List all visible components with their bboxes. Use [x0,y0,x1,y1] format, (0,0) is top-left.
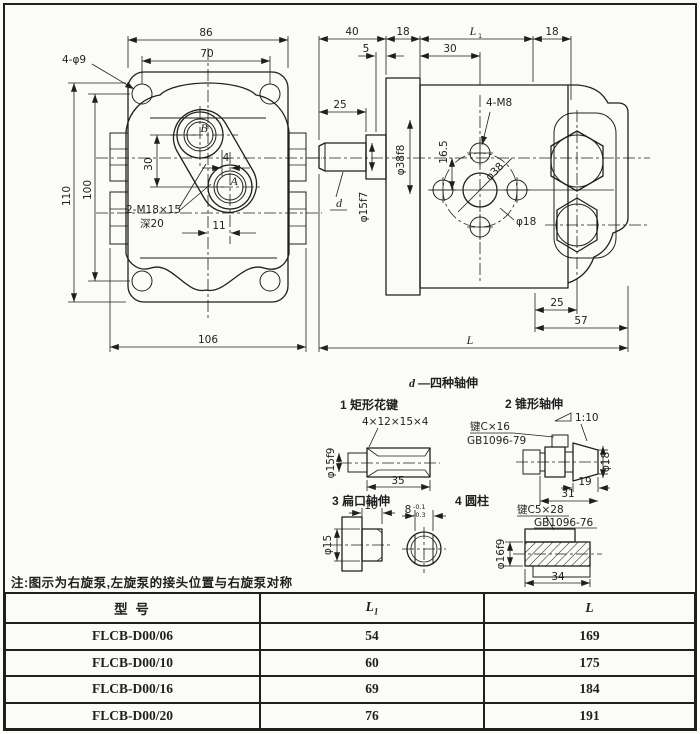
callout-plug-dia: φ18 [500,208,536,228]
svg-text:φ18: φ18 [516,216,536,228]
svg-text:深20: 深20 [140,218,164,230]
callout-port-thread: 2-M18×15 深20 [126,164,211,230]
dim-port-vertical: 30 [143,135,224,187]
svg-text:-0.3: -0.3 [413,511,426,519]
svg-text:11: 11 [212,220,225,232]
svg-text:-0.1: -0.1 [413,503,426,511]
dim-shaft-dia: φ15f7 [358,143,372,222]
drive-shaft [319,143,366,171]
svg-text:4×12×15×4: 4×12×15×4 [362,416,429,428]
svg-text:4 圆柱: 4 圆柱 [455,493,489,508]
l1-cell: 69 [260,676,484,703]
dim-port-circle: φ38 [483,160,506,183]
svg-text:4: 4 [223,152,230,164]
shaft-collar [366,135,386,179]
svg-text:110: 110 [61,186,73,206]
dim-hole-span: 70 [142,48,270,84]
svg-text:30: 30 [143,157,155,170]
table-row: FLCB-D00/20 76 191 [5,703,695,730]
svg-text:18: 18 [396,26,409,38]
l-cell: 175 [484,650,695,677]
svg-text:35: 35 [391,475,404,487]
table-row: FLCB-D00/06 54 169 [5,623,695,650]
shaft-flat: 3 扁口轴伸 10 φ15 8 -0.1 -0.3 [322,493,446,573]
svg-text:25: 25 [550,297,563,309]
svg-text:57: 57 [574,315,587,327]
l1-cell: 60 [260,650,484,677]
svg-text:1: 1 [478,32,482,40]
svg-text:34: 34 [551,571,565,583]
svg-text:φ15f7: φ15f7 [358,192,370,223]
dim-rear-len: 57 [535,286,628,352]
svg-text:100: 100 [82,180,94,200]
spec-table: 型 号 L1 L FLCB-D00/06 54 169 FLCB-D00/10 … [4,592,696,730]
shaft-taper: 2 锥形轴伸 键C×16 GB1096-79 1:10 φ18 19 31 [467,396,612,505]
svg-text:1 矩形花键: 1 矩形花键 [340,397,398,412]
svg-text:L: L [469,24,477,38]
svg-text:4-M8: 4-M8 [486,97,512,109]
svg-text:φ15: φ15 [322,535,334,555]
svg-text:31: 31 [561,488,574,500]
dim-shaft-len: 25 [319,99,366,132]
l-cell: 169 [484,623,695,650]
corner-bolt-holes [132,84,280,291]
svg-text:键C5×28: 键C5×28 [517,503,564,516]
svg-text:5: 5 [363,43,370,55]
l1-cell: 54 [260,623,484,650]
svg-text:70: 70 [200,48,213,60]
model-cell: FLCB-D00/20 [5,703,260,730]
dim-rear-offset: 25 [535,278,577,332]
shaft-variants: d —四种轴伸 1 矩形花键 4×12×15×4 φ15f9 35 3 扁口轴伸… [322,375,612,587]
shaft-spline: 1 矩形花键 4×12×15×4 φ15f9 35 [325,397,440,491]
svg-text:φ15f9: φ15f9 [325,448,337,479]
side-view: φ38 φ18 4-M8 16.5 φ38f8 φ15f7 d 40 [308,24,650,352]
engineering-drawing: B A 86 70 4-φ9 110 100 30 4 [0,0,700,592]
svg-text:键C×16: 键C×16 [470,420,510,433]
svg-text:106: 106 [198,334,218,346]
port-b-label: B [200,121,208,135]
model-cell: FLCB-D00/10 [5,650,260,677]
taper-symbol-icon [555,413,571,421]
svg-text:40: 40 [345,26,358,38]
svg-text:30: 30 [443,43,456,55]
drawing-note: 注:图示为右旋泵,左旋泵的接头位置与右旋泵对称 [11,572,293,591]
l-cell: 191 [484,703,695,730]
header-l: L [484,593,695,623]
l-cell: 184 [484,676,695,703]
dim-hole-height: 100 [82,94,130,281]
svg-text:86: 86 [199,27,213,39]
variants-title-d: d [409,376,416,390]
drawing-page: B A 86 70 4-φ9 110 100 30 4 [0,0,700,734]
shaft-d-callout: d [330,172,347,210]
svg-text:25: 25 [333,99,346,111]
table-header-row: 型 号 L1 L [5,593,695,623]
mounting-plate [386,78,420,295]
port-a-label: A [229,174,238,188]
svg-text:16.5: 16.5 [438,140,450,163]
side-top-dims: 40 18 L 1 18 [319,24,571,140]
dim-face-to-port: 30 [420,43,480,85]
table-row: FLCB-D00/16 69 184 [5,676,695,703]
svg-text:3 扁口轴伸: 3 扁口轴伸 [332,493,390,508]
pump-body-side [420,85,568,288]
svg-text:L: L [466,333,474,347]
svg-text:10: 10 [364,500,377,512]
svg-text:2 锥形轴伸: 2 锥形轴伸 [505,396,563,411]
svg-text:8: 8 [405,504,412,516]
shaft-cylinder: 4 圆柱 键C5×28 GB1096-76 φ16f9 34 [455,493,602,587]
svg-text:1:10: 1:10 [575,412,599,424]
variants-title: —四种轴伸 [418,375,478,390]
svg-text:φ18: φ18 [600,452,612,472]
model-cell: FLCB-D00/06 [5,623,260,650]
model-cell: FLCB-D00/16 [5,676,260,703]
svg-text:18: 18 [545,26,558,38]
dim-port-horizontal: 11 [182,220,256,233]
svg-text:φ16f9: φ16f9 [495,539,507,570]
svg-text:d: d [336,196,343,210]
l1-cell: 76 [260,703,484,730]
table-row: FLCB-D00/10 60 175 [5,650,695,677]
svg-text:19: 19 [578,476,591,488]
dim-spigot: φ38f8 [395,120,410,194]
svg-text:GB1096-79: GB1096-79 [467,435,526,447]
callout-mount-holes: 4-M8 [482,97,512,145]
svg-text:2-M18×15: 2-M18×15 [126,204,181,216]
svg-text:GB1096-76: GB1096-76 [534,517,594,529]
header-l1: L1 [260,593,484,623]
callout-corner-holes: 4-φ9 [62,54,134,89]
svg-text:4-φ9: 4-φ9 [62,54,86,66]
front-view: B A 86 70 4-φ9 110 100 30 4 [61,27,322,352]
header-model: 型 号 [5,593,260,623]
dim-step: 5 [358,43,404,132]
svg-text:φ38f8: φ38f8 [395,145,407,176]
